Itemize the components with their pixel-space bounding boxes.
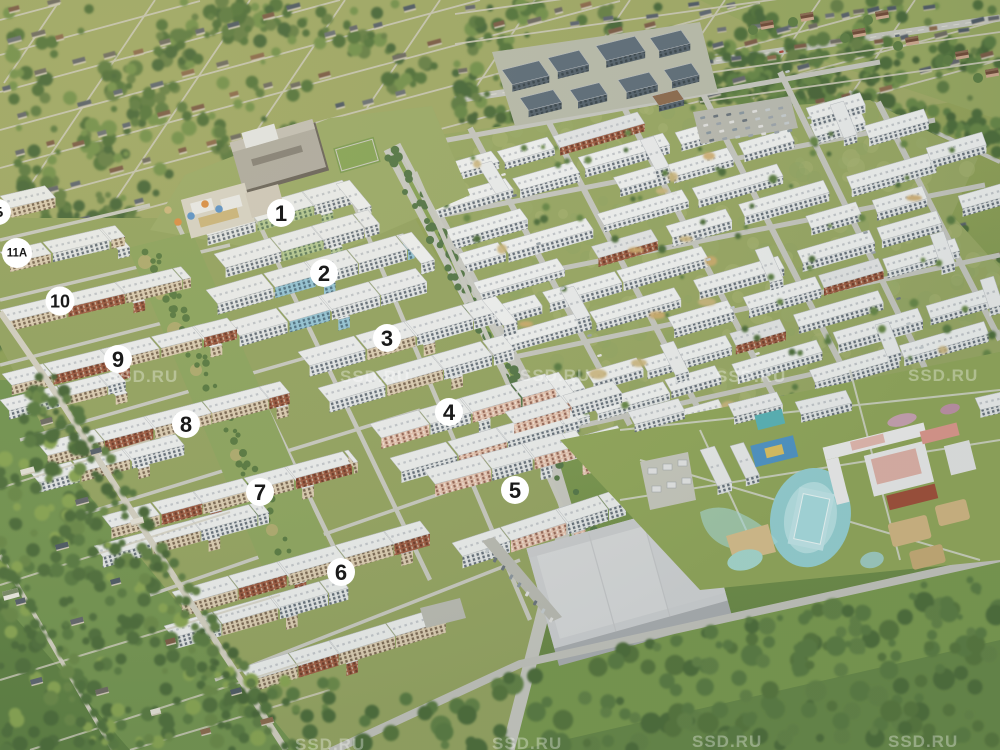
svg-text:SSD.RU: SSD.RU [716,367,786,386]
svg-text:11А: 11А [7,248,27,260]
svg-text:6: 6 [335,560,347,585]
svg-text:2: 2 [318,261,330,286]
svg-text:8: 8 [180,412,192,437]
svg-text:9: 9 [112,347,124,372]
svg-text:3: 3 [381,326,393,351]
svg-text:7: 7 [254,480,266,505]
svg-text:SSD.RU: SSD.RU [492,734,562,750]
svg-text:5: 5 [509,478,521,503]
svg-text:SSD.RU: SSD.RU [520,366,590,385]
svg-text:SSD.RU: SSD.RU [888,732,958,750]
svg-text:SSD.RU: SSD.RU [908,366,978,385]
svg-text:4: 4 [443,400,456,425]
svg-text:10: 10 [50,292,70,312]
svg-text:SSD.RU: SSD.RU [340,367,410,386]
svg-text:SSD.RU: SSD.RU [692,732,762,750]
svg-text:SSD.RU: SSD.RU [295,735,365,750]
svg-text:1: 1 [275,201,287,226]
svg-text:Б: Б [0,204,4,221]
